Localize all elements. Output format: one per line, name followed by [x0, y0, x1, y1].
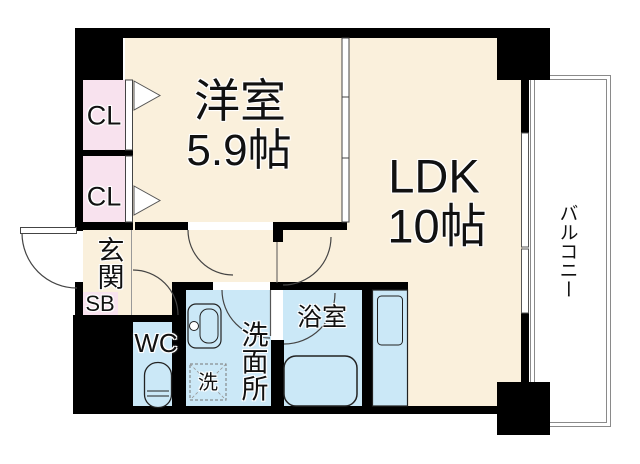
toilet-icon — [145, 363, 172, 408]
ldk-size: 10帖 — [387, 203, 486, 250]
closet2-door — [126, 156, 133, 222]
ldk-door-arc — [283, 237, 331, 285]
fixtures-overlay — [0, 0, 640, 464]
closet1-swing-triangle-icon — [134, 81, 160, 110]
window-lower — [522, 249, 529, 313]
western-door-arc — [188, 230, 233, 275]
entrance-door-leaf — [21, 228, 77, 234]
window-upper — [522, 133, 529, 247]
wc-label: WC — [134, 330, 177, 356]
entrance-label: 玄関 — [95, 236, 122, 290]
western-room-name: 洋室 — [194, 78, 286, 124]
ldk-name: LDK — [388, 153, 479, 200]
bathtub-icon — [284, 356, 357, 406]
washbasin-faucet — [190, 322, 199, 331]
closet2-swing-triangle-icon — [134, 186, 160, 215]
closet1-door — [126, 80, 133, 150]
western-room-size: 5.9帖 — [186, 129, 291, 173]
floor-plan: 洋室 5.9帖 LDK 10帖 CL CL 玄関 SB WC 洗面所 洗 浴室 … — [0, 0, 640, 464]
closet1-label: CL — [87, 103, 122, 130]
bathroom-label: 浴室 — [297, 306, 347, 331]
washroom-label: 洗面所 — [239, 321, 266, 402]
washer-label: 洗 — [198, 373, 218, 393]
entrance-door-arc — [22, 233, 77, 288]
wc-door-arc — [133, 270, 178, 315]
balcony-label: バルコニー — [558, 204, 577, 299]
shoebox-label: SB — [85, 293, 114, 315]
sliding-partition — [342, 38, 349, 222]
closet2-label: CL — [87, 184, 122, 211]
